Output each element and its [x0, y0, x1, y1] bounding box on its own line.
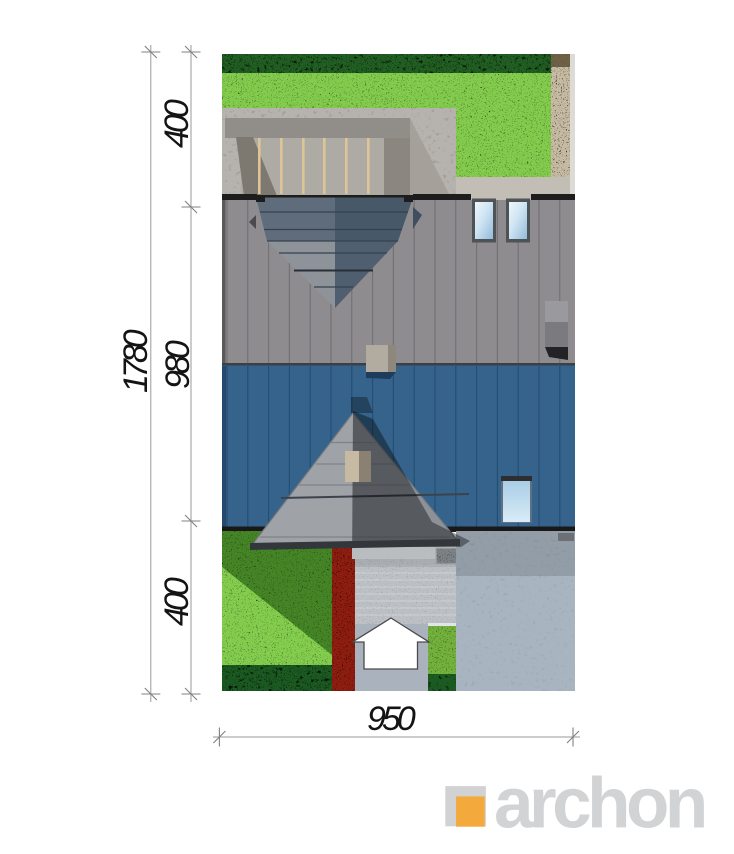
svg-text:400: 400 — [158, 99, 196, 148]
svg-text:980: 980 — [159, 340, 197, 389]
svg-text:400: 400 — [158, 577, 196, 626]
svg-text:1780: 1780 — [117, 329, 155, 393]
svg-text:950: 950 — [367, 700, 416, 738]
svg-text:archon: archon — [494, 765, 704, 844]
